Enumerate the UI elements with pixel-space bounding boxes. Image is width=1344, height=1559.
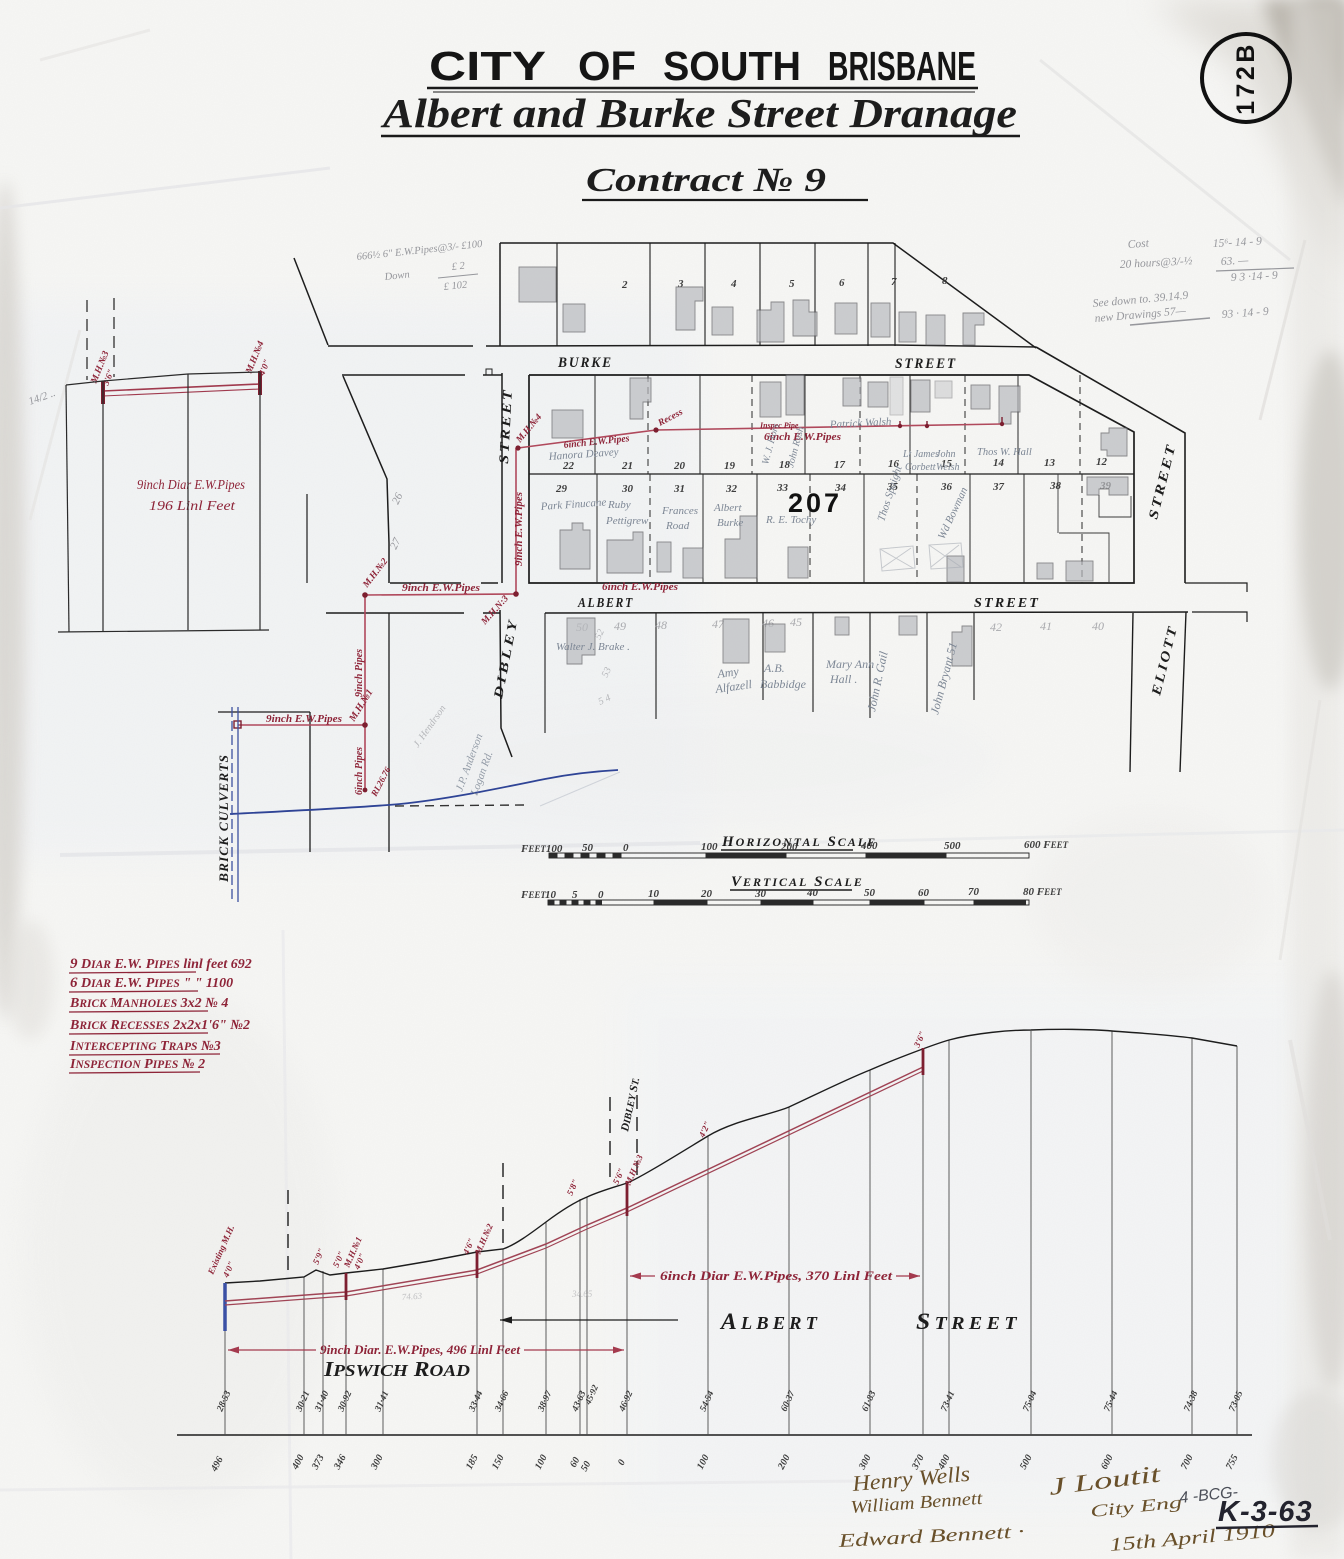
svg-text:9 3 ·14 - 9: 9 3 ·14 - 9: [1231, 270, 1279, 284]
svg-text:Frances: Frances: [661, 505, 698, 517]
svg-text:14: 14: [993, 457, 1005, 469]
svg-text:20: 20: [673, 460, 686, 472]
svg-text:IPSWICH ROAD: IPSWICH ROAD: [323, 1357, 470, 1381]
svg-text:4: 4: [730, 278, 737, 290]
svg-text:SOUTH: SOUTH: [663, 43, 801, 89]
svg-text:Albert and Burke Street Dranag: Albert and Burke Street Dranage: [380, 90, 1017, 136]
svg-text:BURKE: BURKE: [557, 355, 613, 371]
svg-text:38: 38: [1049, 480, 1062, 492]
svg-text:STREET: STREET: [916, 1309, 1021, 1334]
svg-text:30: 30: [621, 483, 634, 495]
svg-text:600 FEET: 600 FEET: [1024, 839, 1069, 851]
svg-text:BRICK RECESSES 2x2x1'6" №2: BRICK RECESSES 2x2x1'6" №2: [69, 1018, 250, 1033]
svg-text:John: John: [936, 449, 955, 460]
svg-text:0: 0: [623, 842, 629, 854]
svg-text:VERTICAL SCALE: VERTICAL SCALE: [731, 874, 864, 890]
svg-text:196 Linl Feet: 196 Linl Feet: [149, 498, 236, 513]
svg-text:CITY: CITY: [429, 43, 546, 89]
svg-text:31: 31: [673, 483, 685, 495]
svg-text:0: 0: [598, 889, 604, 901]
svg-text:A.B.: A.B.: [763, 661, 785, 675]
svg-text:10: 10: [648, 888, 660, 900]
svg-text:17: 17: [834, 459, 846, 471]
svg-text:Hall .: Hall .: [829, 672, 857, 686]
svg-text:Pettigrew: Pettigrew: [605, 515, 649, 527]
svg-text:9inch E.W.Pipes: 9inch E.W.Pipes: [266, 714, 342, 725]
svg-text:6 DIAR E.W. PIPES " " 1: 6 DIAR E.W. PIPES " " 1100: [70, 975, 233, 991]
svg-text:50: 50: [864, 887, 876, 899]
svg-text:36: 36: [940, 481, 953, 493]
svg-text:Thos W. Hall: Thos W. Hall: [977, 447, 1032, 458]
svg-text:Cost: Cost: [1127, 237, 1150, 250]
svg-text:12: 12: [1096, 456, 1108, 468]
svg-text:42: 42: [990, 620, 1002, 634]
svg-text:70: 70: [968, 886, 980, 898]
svg-text:FEET: FEET: [520, 889, 546, 901]
svg-text:50: 50: [582, 842, 594, 854]
svg-text:19: 19: [724, 460, 736, 472]
svg-text:49: 49: [614, 619, 626, 633]
svg-text:9inch Diar. E.W.Pipes, 496 Lin: 9inch Diar. E.W.Pipes, 496 Linl Feet: [320, 1342, 520, 1357]
svg-text:K-3-63: K-3-63: [1218, 1496, 1313, 1528]
svg-text:OF: OF: [578, 43, 636, 89]
svg-text:41: 41: [1040, 619, 1052, 633]
svg-text:Corbett: Corbett: [905, 462, 936, 473]
svg-text:9inch Pipes: 9inch Pipes: [354, 649, 365, 697]
svg-text:STREET: STREET: [895, 356, 957, 372]
svg-text:BRISBANE: BRISBANE: [828, 43, 976, 89]
svg-text:Babbidge: Babbidge: [760, 677, 807, 691]
svg-text:30: 30: [754, 888, 767, 900]
svg-text:21: 21: [621, 460, 633, 472]
svg-text:6inch E.W.Pipes: 6inch E.W.Pipes: [602, 582, 678, 593]
svg-text:60: 60: [918, 887, 930, 899]
svg-text:STREET: STREET: [974, 595, 1040, 610]
svg-text:ALBERT: ALBERT: [719, 1309, 821, 1334]
svg-text:9inch E.W.Pipes: 9inch E.W.Pipes: [514, 492, 525, 566]
svg-text:6inch Diar E.W.Pipes, 370 Linl: 6inch Diar E.W.Pipes, 370 Linl Feet: [660, 1268, 892, 1283]
svg-text:13: 13: [1044, 457, 1056, 469]
svg-text:5: 5: [789, 278, 795, 290]
svg-text:9inch Diar E.W.Pipes: 9inch Diar E.W.Pipes: [137, 477, 245, 492]
svg-text:100: 100: [701, 841, 718, 853]
svg-text:33: 33: [776, 482, 789, 494]
svg-text:40: 40: [1092, 619, 1104, 633]
svg-text:Road: Road: [665, 520, 690, 532]
svg-text:R. E. Tochy: R. E. Tochy: [765, 514, 816, 526]
svg-text:20: 20: [700, 888, 713, 900]
svg-text:9inch E.W.Pipes: 9inch E.W.Pipes: [402, 583, 480, 594]
svg-text:5: 5: [572, 889, 578, 901]
svg-text:45: 45: [790, 615, 802, 629]
svg-text:Walter J. Brake .: Walter J. Brake .: [556, 641, 630, 653]
svg-text:40: 40: [806, 887, 819, 899]
svg-text:Lt James: Lt James: [902, 449, 939, 460]
svg-text:INSPECTION PIPES № 2: INSPECTION PIPES № 2: [69, 1057, 205, 1072]
svg-text:6: 6: [839, 277, 845, 289]
svg-text:500: 500: [944, 840, 961, 852]
svg-text:74.63: 74.63: [401, 1291, 422, 1302]
svg-text:FEET100: FEET100: [520, 843, 563, 855]
svg-text:BRICK CULVERTS: BRICK CULVERTS: [217, 754, 231, 883]
svg-text:34.65: 34.65: [571, 1289, 593, 1299]
svg-text:Albert: Albert: [713, 502, 742, 514]
svg-text:10: 10: [545, 889, 557, 901]
svg-text:7: 7: [891, 276, 897, 288]
svg-text:63. —: 63. —: [1221, 255, 1250, 268]
svg-text:BRICK MANHOLES 3x2 № 4: BRICK MANHOLES 3x2 № 4: [69, 996, 228, 1011]
svg-text:Mary Ann: Mary Ann: [825, 657, 874, 671]
svg-text:Ruby: Ruby: [607, 499, 631, 511]
svg-text:80 FEET: 80 FEET: [1023, 886, 1062, 898]
svg-text:400: 400: [860, 840, 878, 852]
svg-text:6inch Pipes: 6inch Pipes: [354, 747, 365, 795]
svg-text:48: 48: [655, 618, 667, 632]
svg-text:200: 200: [780, 841, 798, 853]
svg-text:9 DIAR E.W. PIPES linl feet 6: 9 DIAR E.W. PIPES linl feet 692: [70, 956, 252, 972]
svg-text:32: 32: [725, 483, 738, 495]
svg-text:Burke: Burke: [717, 517, 743, 529]
svg-text:ALBERT: ALBERT: [577, 595, 634, 610]
svg-text:37: 37: [992, 481, 1005, 493]
svg-text:172B: 172B: [1232, 41, 1260, 115]
svg-text:£ 2: £ 2: [451, 261, 466, 273]
svg-text:8: 8: [942, 275, 948, 287]
svg-text:2: 2: [621, 279, 628, 291]
svg-text:INTERCEPTING TRAPS №3: INTERCEPTING TRAPS №3: [69, 1039, 221, 1054]
svg-text:Welsh: Welsh: [936, 462, 960, 473]
svg-text:Contract № 9: Contract № 9: [586, 162, 826, 199]
svg-text:29: 29: [555, 483, 568, 495]
svg-text:HORIZONTAL SCALE: HORIZONTAL SCALE: [721, 834, 877, 850]
